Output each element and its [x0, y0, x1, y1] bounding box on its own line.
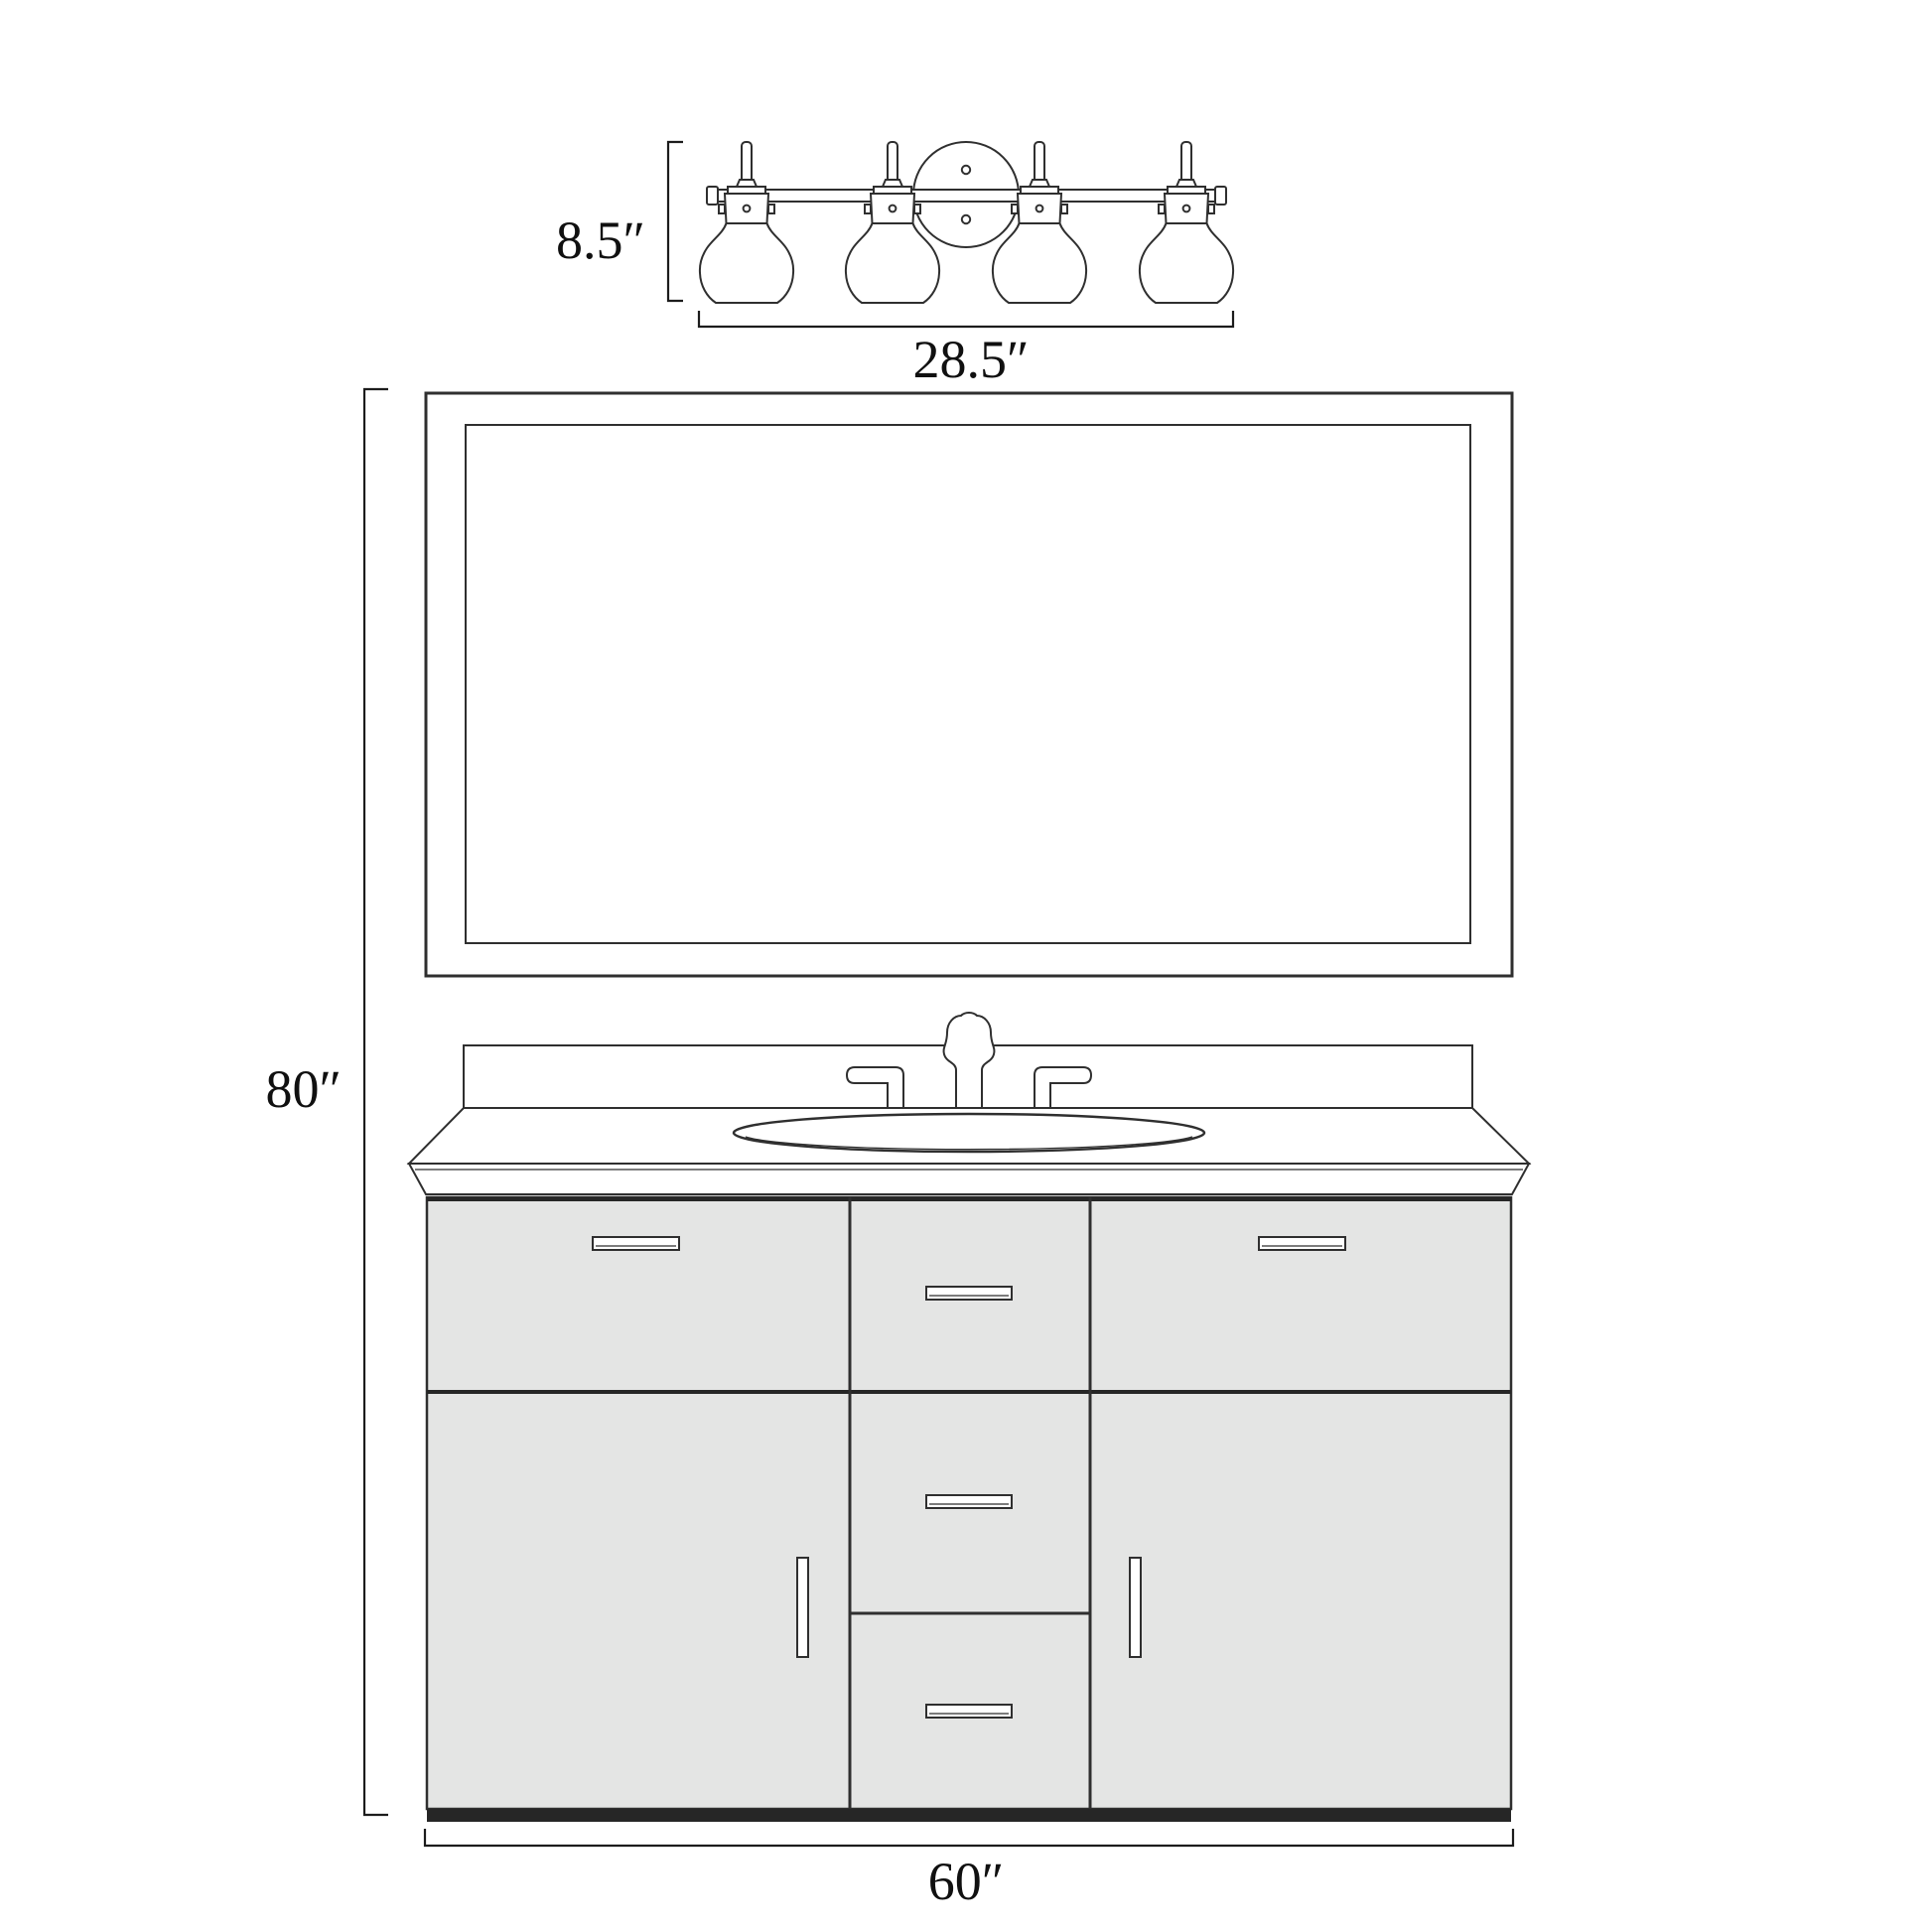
mirror	[426, 393, 1512, 976]
dim-label-assembly-height: 80″	[266, 1059, 343, 1119]
light-bar	[713, 190, 1219, 202]
drawer-handle-bottom	[926, 1705, 1012, 1718]
door-handle-bottom-right	[1130, 1558, 1141, 1657]
door-handle-top-left	[593, 1237, 679, 1250]
drawer-handle-middle	[926, 1495, 1012, 1508]
mirror-frame	[426, 393, 1512, 976]
counter-apron	[409, 1164, 1529, 1194]
dim-label-vanity-width: 60″	[928, 1852, 1005, 1911]
dim-label-light-width: 28.5″	[913, 330, 1030, 389]
backplate-screw-bottom	[962, 215, 970, 223]
light-bar-end-left	[707, 187, 718, 205]
backplate-screw-top	[962, 166, 970, 174]
drawer-handle-top	[926, 1287, 1012, 1300]
dimension-diagram: 8.5″ 28.5″ 80″ 60″	[0, 0, 1932, 1932]
dim-bracket-light-height	[668, 142, 683, 301]
door-handle-bottom-left	[797, 1558, 808, 1657]
door-handle-top-right	[1259, 1237, 1345, 1250]
light-shade	[1140, 142, 1233, 303]
vanity-light-fixture	[700, 142, 1233, 303]
vanity	[409, 1013, 1529, 1822]
dim-bracket-vanity-width	[425, 1829, 1513, 1846]
cabinet-base-strip	[427, 1809, 1511, 1822]
light-bar-end-right	[1215, 187, 1226, 205]
light-shade	[700, 142, 793, 303]
counter-top	[409, 1108, 1529, 1164]
dim-bracket-assembly-height	[364, 389, 388, 1815]
diagram-canvas: 8.5″ 28.5″ 80″ 60″	[0, 0, 1932, 1932]
dim-label-light-height: 8.5″	[556, 210, 645, 270]
dim-bracket-light-width	[699, 311, 1233, 327]
